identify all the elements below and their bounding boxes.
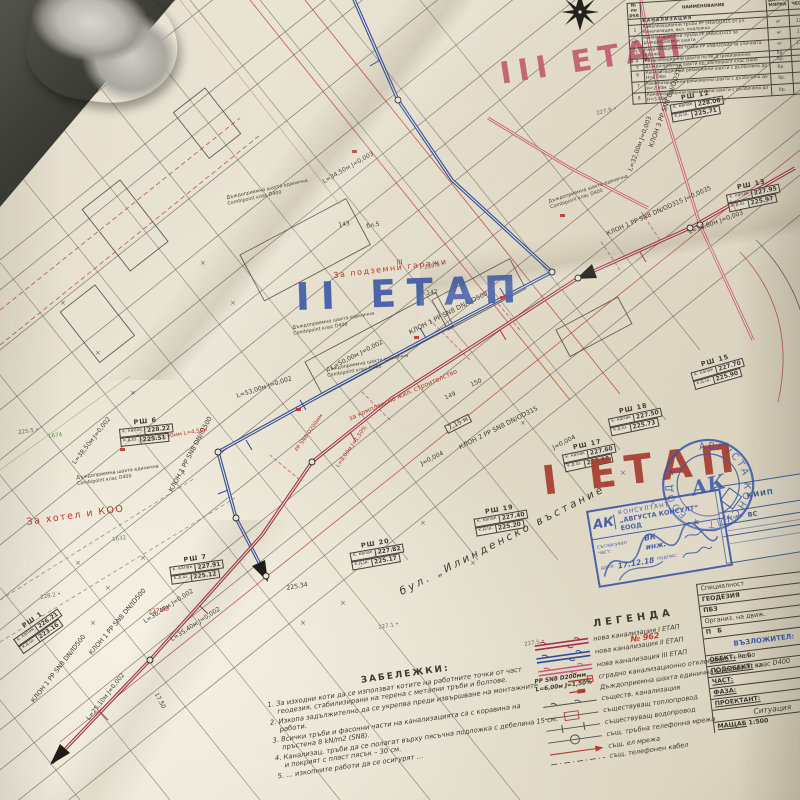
boq-cell: 2 bbox=[629, 36, 642, 48]
terrain-cross-symbol: × bbox=[390, 545, 396, 552]
terrain-cross-symbol: × bbox=[200, 260, 206, 267]
boq-cell: 7 bbox=[632, 81, 645, 93]
terrain-cross-symbol: × bbox=[180, 470, 186, 477]
boq-cell: 12.00 bbox=[789, 14, 800, 27]
terrain-cross-symbol: × bbox=[470, 560, 476, 567]
terrain-cross-symbol: × bbox=[520, 420, 526, 427]
boq-cell: 134.00 bbox=[790, 36, 800, 49]
terrain-cross-symbol: × bbox=[105, 585, 111, 592]
boq-cell: 1 bbox=[628, 25, 641, 37]
stage-label-2: II ЕТАП bbox=[295, 270, 528, 316]
map-label: III bbox=[396, 259, 403, 267]
terrain-cross-symbol: × bbox=[130, 390, 136, 397]
boq-cell: 3 bbox=[630, 47, 643, 59]
terrain-cross-symbol: × bbox=[300, 620, 306, 627]
photo-of-sewerage-plan: За подземни гаражиза комплексно жил. стр… bbox=[0, 0, 800, 800]
boq-cell: 6 bbox=[793, 71, 800, 84]
compass-rose-icon bbox=[558, 0, 602, 32]
terrain-cross-symbol: × bbox=[60, 300, 66, 307]
manhole-label: РШ 6к. капак228.22к.д.ш.225.51 bbox=[118, 414, 175, 447]
boq-cell: 11.00 bbox=[790, 25, 800, 38]
quantities-table: КАНАЛИЗАЦИЯ – II ЕТАП № по ред НАИМЕНОВА… bbox=[626, 0, 800, 105]
boq-cell: 4 bbox=[793, 82, 800, 95]
terrain-cross-symbol: × bbox=[90, 620, 96, 627]
paper-sheet: За подземни гаражиза комплексно жил. стр… bbox=[0, 0, 800, 800]
terrain-cross-symbol: × bbox=[95, 350, 101, 357]
terrain-cross-symbol: × bbox=[140, 555, 146, 562]
boq-cell: 6 bbox=[631, 70, 644, 82]
terrain-cross-symbol: × bbox=[230, 300, 236, 307]
boq-cell: бр. bbox=[771, 83, 794, 95]
terrain-cross-symbol: × bbox=[75, 560, 81, 567]
terrain-cross-symbol: × bbox=[420, 520, 426, 527]
boq-cell: 1 bbox=[792, 60, 800, 73]
col-header-num: № по ред bbox=[627, 3, 641, 20]
consultant-monogram: АК bbox=[591, 514, 616, 533]
boq-cell: 8 bbox=[633, 93, 646, 105]
terrain-cross-symbol: × bbox=[340, 600, 346, 607]
